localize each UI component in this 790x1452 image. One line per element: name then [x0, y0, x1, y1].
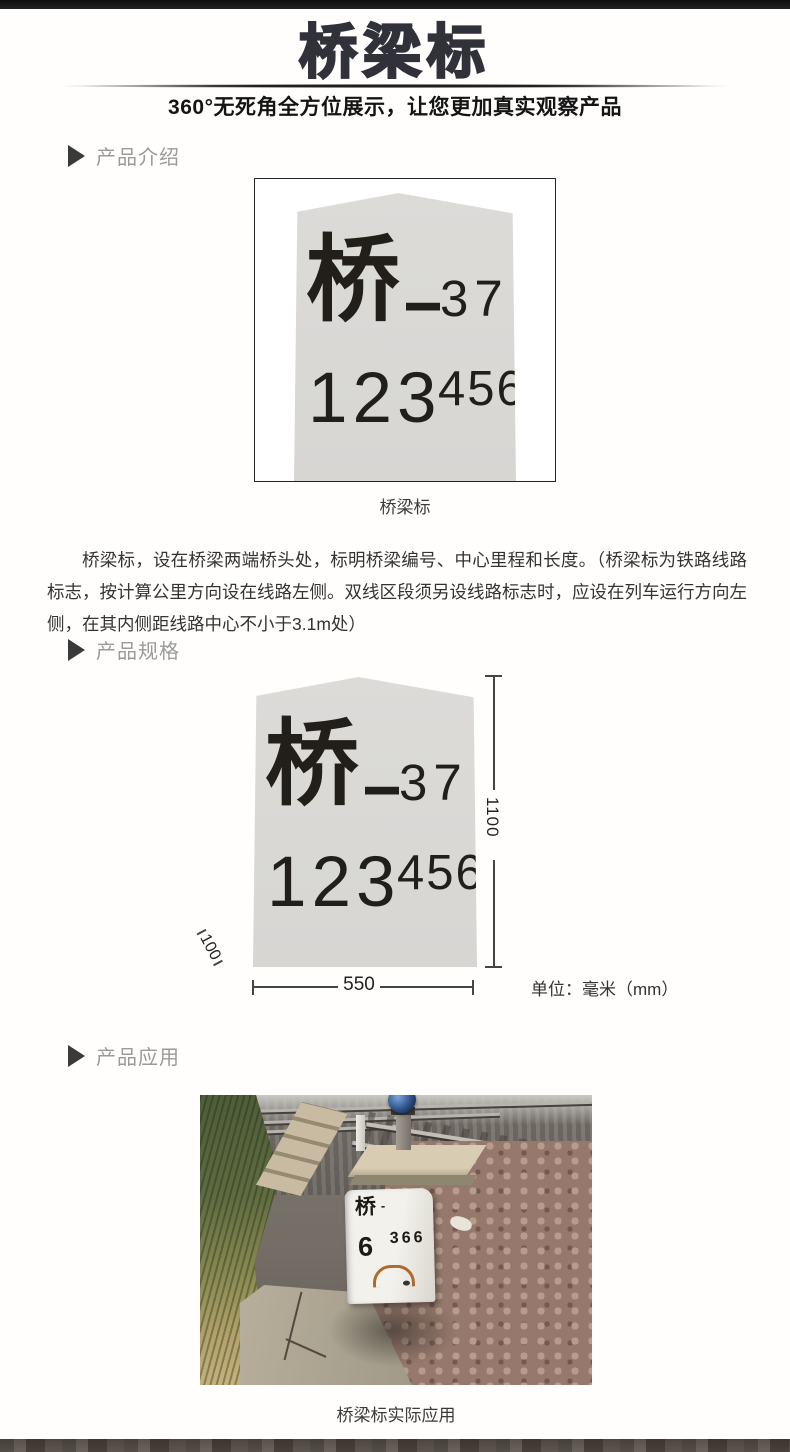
stone-char: 桥 — [306, 233, 400, 327]
bevel-dimension-value: 100 — [195, 931, 223, 963]
unit-label: 单位：毫米（mm） — [531, 975, 678, 1000]
signal-base-slab — [348, 1145, 487, 1177]
triangle-bullet-icon — [68, 1045, 85, 1067]
photo-stone-number-left: 6 — [358, 1233, 374, 1260]
application-photo-caption: 桥梁标实际应用 — [200, 1401, 592, 1426]
white-post — [356, 1115, 365, 1151]
height-dimension-line — [493, 676, 495, 790]
section-heading-label: 产品规格 — [96, 635, 180, 664]
dark-dirt-patch — [328, 1293, 458, 1367]
product-detail-page: 桥梁标 360°无死角全方位展示，让您更加真实观察产品 产品介绍 桥 — 37 … — [0, 0, 790, 1452]
section-header-intro: 产品介绍 — [68, 141, 180, 170]
photo-stone-number-right: 366 — [390, 1230, 426, 1247]
photo-marker-stone: 桥 - 6 366 — [345, 1188, 436, 1304]
stone-km-number: 123 — [308, 363, 441, 434]
bridge-marker-stone: 桥 — 37 123 456 — [294, 193, 516, 482]
stone-serial-number: 37 — [399, 757, 468, 808]
width-dimension-label: 550 — [338, 974, 380, 996]
stone-km-number: 123 — [267, 847, 400, 918]
intro-image-caption: 桥梁标 — [254, 493, 556, 518]
stone-dash: — — [365, 747, 399, 825]
section-heading-label: 产品介绍 — [96, 141, 180, 170]
bridge-marker-stone: 桥 — 37 123 456 — [253, 677, 477, 967]
page-subtitle: 360°无死角全方位展示，让您更加真实观察产品 — [0, 91, 790, 121]
dimension-cap — [485, 675, 502, 677]
section-header-application: 产品应用 — [68, 1041, 180, 1070]
product-description: 桥梁标，设在桥梁两端桥头处，标明桥梁编号、中心里程和长度。（桥梁标为铁路线路标志… — [47, 544, 747, 640]
dimension-tick — [213, 960, 223, 966]
signal-base-edge — [349, 1175, 476, 1185]
height-dimension-line — [493, 860, 495, 967]
dimension-cap — [485, 966, 502, 968]
intro-product-image: 桥 — 37 123 456 — [254, 178, 556, 482]
photo-stone-char: 桥 — [355, 1196, 377, 1218]
stone-char: 桥 — [265, 717, 359, 811]
photo-stone-dash: - — [381, 1199, 386, 1212]
section-heading-label: 产品应用 — [96, 1041, 180, 1070]
dimension-cap — [252, 980, 254, 995]
page-title: 桥梁标 — [0, 22, 790, 84]
section-header-specs: 产品规格 — [68, 635, 180, 664]
application-photo: 桥 - 6 366 — [200, 1095, 592, 1385]
width-dimension-line — [380, 986, 473, 988]
stone-m-number: 456 — [397, 849, 485, 898]
height-dimension-label: 1100 — [482, 797, 502, 838]
stone-m-number: 456 — [438, 365, 526, 414]
triangle-bullet-icon — [68, 639, 85, 661]
stone-serial-number: 37 — [440, 273, 509, 324]
triangle-bullet-icon — [68, 145, 85, 167]
bottom-crop-strip — [0, 1439, 790, 1452]
dimension-cap — [472, 980, 474, 995]
stone-dash: — — [406, 263, 440, 341]
width-dimension-line — [253, 986, 338, 988]
title-divider — [57, 84, 733, 88]
bevel-dimension-label: 100 — [193, 927, 226, 968]
top-crop-strip — [0, 0, 790, 9]
spec-diagram: 桥 — 37 123 456 1100 550 100 单位：毫米（mm） — [0, 670, 790, 1015]
